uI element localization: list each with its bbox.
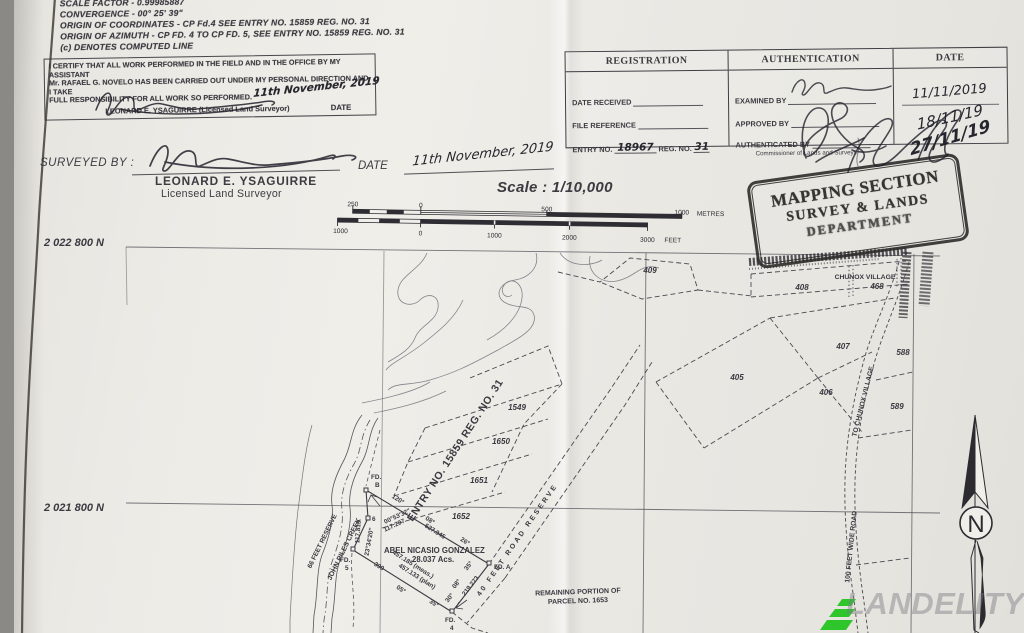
scale-bar: 250 0 500 1000 METRES 1000 0 (0, 0, 1024, 633)
feet-ruler: 1000 0 1000 2000 3000 FEET (333, 218, 681, 244)
feet-unit-label: FEET (664, 237, 681, 244)
ft-tick-1000r: 1000 (487, 232, 502, 239)
metres-ruler: 250 0 500 1000 METRES (347, 201, 725, 219)
scanned-survey-plan: 2 022 800 N 2 021 800 N (0, 0, 1024, 633)
landelity-watermark-text: LANDELITY (846, 586, 1024, 622)
ft-tick-2000: 2000 (562, 235, 577, 242)
landelity-watermark: LANDELITY (816, 586, 1024, 632)
metres-unit-label: METRES (697, 211, 725, 218)
ft-tick-3000: 3000 (640, 237, 655, 244)
ft-tick-0: 0 (419, 230, 423, 237)
ft-tick-1000l: 1000 (333, 228, 348, 235)
